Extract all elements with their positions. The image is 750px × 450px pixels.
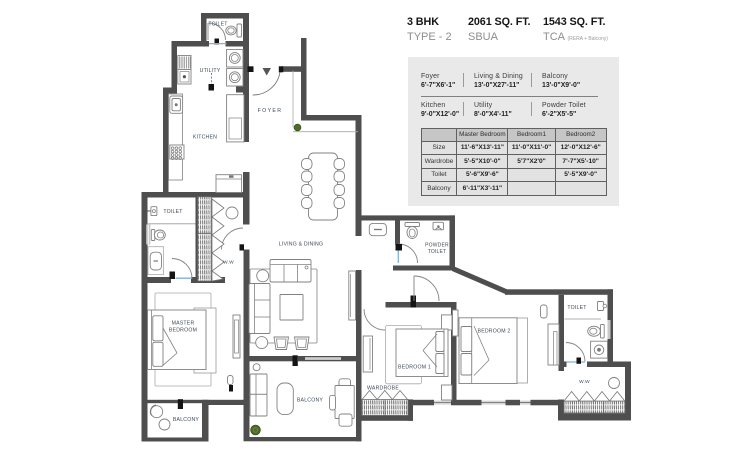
svg-text:TOILET: TOILET [163, 209, 183, 215]
svg-text:LIVING & DINING: LIVING & DINING [279, 242, 324, 248]
svg-text:WARDROBE: WARDROBE [367, 385, 399, 391]
svg-text:MASTER: MASTER [172, 321, 195, 327]
svg-text:TOILET: TOILET [208, 22, 228, 28]
svg-text:TOILET: TOILET [428, 249, 447, 255]
svg-text:BEDROOM: BEDROOM [169, 328, 197, 334]
svg-text:BEDROOM 1: BEDROOM 1 [398, 365, 431, 371]
svg-text:W.W: W.W [223, 260, 234, 266]
svg-text:POWDER: POWDER [425, 243, 449, 249]
svg-text:UTILITY: UTILITY [200, 68, 221, 74]
svg-text:KITCHEN: KITCHEN [193, 135, 217, 141]
svg-text:FOYER: FOYER [258, 108, 283, 114]
svg-text:W.W: W.W [579, 379, 590, 385]
svg-text:BALCONY: BALCONY [173, 417, 200, 423]
svg-text:BEDROOM 2: BEDROOM 2 [478, 329, 511, 335]
svg-text:BALCONY: BALCONY [297, 398, 324, 404]
svg-text:TOILET: TOILET [567, 305, 587, 311]
